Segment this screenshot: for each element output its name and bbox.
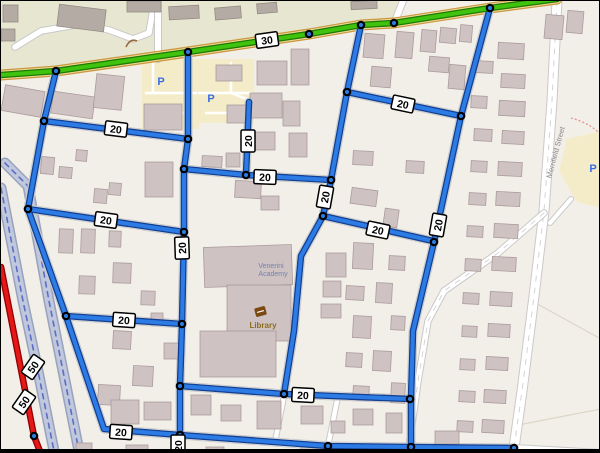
- speed-limit-value: 20: [432, 218, 446, 232]
- building: [191, 395, 211, 415]
- speed-limit-value: 20: [243, 135, 255, 147]
- speed-limit-badge[interactable]: 20: [429, 213, 447, 237]
- building: [459, 25, 472, 43]
- way-node[interactable]: [487, 5, 493, 11]
- parking-icon: P: [589, 163, 596, 175]
- building: [406, 161, 425, 174]
- building: [391, 316, 406, 331]
- building: [420, 29, 437, 52]
- way-node[interactable]: [181, 229, 187, 235]
- building: [145, 162, 173, 197]
- way-node[interactable]: [177, 383, 183, 389]
- building: [544, 14, 564, 39]
- building: [490, 291, 513, 306]
- way-node[interactable]: [63, 313, 69, 319]
- building: [363, 33, 385, 59]
- building: [76, 150, 88, 162]
- speed-limit-value: 20: [177, 242, 189, 254]
- building: [226, 153, 240, 167]
- academy-label-line1: Venerini: [258, 263, 284, 270]
- way-node[interactable]: [243, 172, 249, 178]
- building: [353, 409, 373, 425]
- way-node[interactable]: [344, 89, 350, 95]
- way-node[interactable]: [358, 22, 364, 28]
- building: [501, 73, 526, 88]
- building: [227, 105, 247, 123]
- building: [250, 93, 282, 118]
- building: [389, 256, 406, 271]
- building: [488, 323, 511, 337]
- building: [323, 281, 341, 297]
- building: [200, 331, 276, 377]
- way-node[interactable]: [185, 136, 191, 142]
- building: [321, 304, 341, 318]
- building: [291, 49, 309, 85]
- way-node[interactable]: [306, 31, 312, 37]
- speed-limit-badge[interactable]: 20: [175, 237, 190, 259]
- way-node[interactable]: [41, 118, 47, 124]
- library-label: Library: [249, 321, 277, 330]
- building: [502, 130, 525, 144]
- building: [59, 229, 74, 253]
- speed-limit-badge[interactable]: 20: [104, 121, 128, 138]
- building: [127, 1, 161, 12]
- building: [370, 66, 392, 88]
- building: [353, 150, 374, 165]
- speed-limit-value: 20: [109, 123, 122, 136]
- building: [301, 406, 323, 424]
- building: [109, 231, 122, 247]
- building: [494, 223, 519, 238]
- speed-limit-value: 20: [118, 315, 131, 328]
- building: [471, 161, 488, 173]
- building: [141, 291, 155, 305]
- building: [132, 365, 153, 386]
- building: [435, 431, 459, 444]
- building: [144, 402, 171, 420]
- way-node[interactable]: [328, 177, 334, 183]
- way-node[interactable]: [391, 20, 397, 26]
- building: [386, 413, 402, 433]
- building: [375, 283, 392, 304]
- building: [484, 389, 507, 403]
- way-node[interactable]: [320, 213, 326, 219]
- way-node[interactable]: [25, 206, 31, 212]
- way-node[interactable]: [31, 433, 37, 439]
- academy-label-line2: Academy: [258, 271, 288, 278]
- building: [93, 74, 124, 111]
- map-canvas[interactable]: 30202020202020202020202020205050PPPVener…: [0, 0, 600, 453]
- building: [111, 400, 139, 424]
- building: [346, 286, 365, 301]
- parking-icon: P: [157, 76, 164, 88]
- building: [482, 419, 505, 433]
- building: [255, 132, 275, 150]
- parking-icon: P: [207, 93, 214, 105]
- way-node[interactable]: [431, 239, 437, 245]
- building: [169, 5, 200, 20]
- way-node[interactable]: [407, 396, 413, 402]
- building: [462, 326, 478, 338]
- speed-limit-badge[interactable]: 20: [110, 424, 133, 440]
- building: [498, 161, 523, 176]
- building: [108, 182, 121, 195]
- building: [463, 293, 480, 305]
- building: [40, 156, 54, 174]
- building: [326, 253, 346, 277]
- building: [164, 343, 180, 359]
- building: [469, 193, 487, 206]
- building: [459, 391, 476, 403]
- way-node[interactable]: [325, 443, 331, 449]
- way-node[interactable]: [185, 49, 191, 55]
- building: [350, 187, 378, 206]
- speed-limit-value: 20: [99, 214, 112, 228]
- building: [331, 421, 345, 433]
- speed-limit-badge[interactable]: 20: [113, 312, 136, 328]
- building: [474, 129, 493, 142]
- building: [93, 188, 107, 203]
- building: [499, 100, 526, 116]
- building: [113, 263, 132, 284]
- building: [221, 405, 241, 421]
- building: [467, 226, 484, 238]
- building: [81, 229, 96, 253]
- speed-limit-badge[interactable]: 20: [316, 185, 334, 209]
- building: [352, 316, 371, 339]
- building: [372, 351, 391, 372]
- building: [428, 56, 449, 73]
- building: [289, 133, 307, 157]
- building: [498, 42, 525, 59]
- building: [448, 64, 466, 89]
- speed-limit-badge[interactable]: 30: [255, 32, 279, 49]
- speed-limit-badge[interactable]: 20: [94, 212, 118, 229]
- building: [257, 61, 287, 85]
- building: [257, 2, 278, 14]
- speed-limit-value: 20: [259, 172, 271, 184]
- building: [283, 101, 300, 126]
- building: [496, 191, 521, 206]
- building: [113, 331, 132, 350]
- building: [3, 5, 18, 22]
- speed-limit-value: 20: [115, 427, 128, 440]
- building: [439, 27, 456, 43]
- speed-limit-badge[interactable]: 20: [254, 170, 276, 185]
- speed-limit-value: 20: [297, 390, 309, 403]
- building: [566, 10, 584, 33]
- way-node[interactable]: [53, 68, 59, 74]
- way-node[interactable]: [179, 321, 185, 327]
- building: [471, 96, 488, 109]
- map-render[interactable]: 30202020202020202020202020205050PPPVener…: [1, 1, 600, 453]
- building: [261, 196, 279, 210]
- building: [395, 31, 414, 58]
- way-node[interactable]: [458, 113, 464, 119]
- building: [257, 401, 281, 429]
- building: [460, 359, 476, 371]
- building: [465, 259, 482, 272]
- building: [215, 6, 242, 20]
- speed-limit-badge[interactable]: 20: [241, 130, 255, 152]
- speed-limit-badge[interactable]: 20: [292, 387, 315, 402]
- bottom-border-bar: [1, 449, 600, 453]
- building: [79, 276, 96, 295]
- building: [1, 29, 15, 41]
- building: [492, 256, 517, 271]
- building: [352, 242, 373, 269]
- speed-limit-value: 30: [261, 34, 274, 48]
- speed-limit-value: 20: [319, 190, 333, 204]
- building: [351, 1, 377, 10]
- building: [144, 104, 182, 130]
- way-node[interactable]: [181, 166, 187, 172]
- building: [202, 155, 223, 167]
- building: [486, 356, 509, 370]
- way-node[interactable]: [281, 391, 287, 397]
- building: [59, 166, 73, 178]
- building: [346, 353, 363, 368]
- building: [216, 65, 242, 81]
